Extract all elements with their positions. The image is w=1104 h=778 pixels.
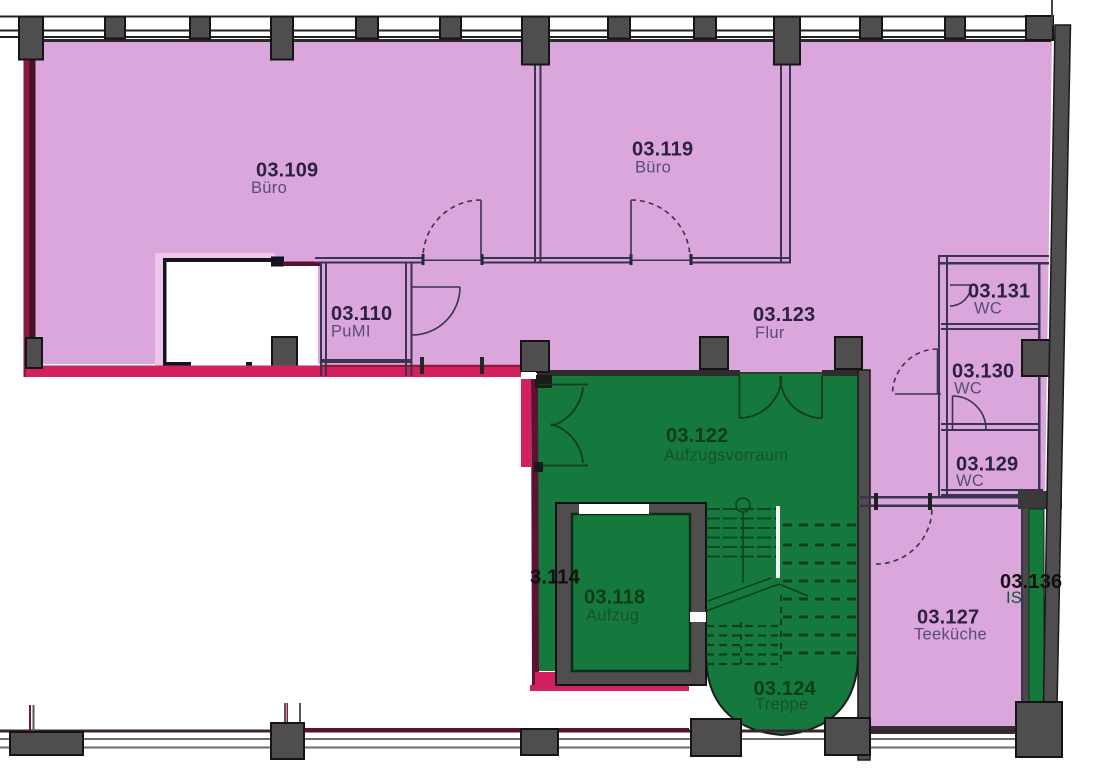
svg-text:03.122: 03.122 <box>666 425 728 447</box>
svg-text:WC: WC <box>956 472 984 490</box>
svg-text:Flur: Flur <box>755 324 785 342</box>
svg-text:Büro: Büro <box>251 179 287 197</box>
svg-text:IS: IS <box>1006 589 1022 607</box>
svg-text:Büro: Büro <box>635 159 671 177</box>
svg-text:Aufzugsvorraum: Aufzugsvorraum <box>664 447 788 465</box>
svg-text:Teeküche: Teeküche <box>914 626 987 644</box>
svg-text:Treppe: Treppe <box>755 696 808 714</box>
svg-text:3.114: 3.114 <box>530 567 581 589</box>
svg-text:03.118: 03.118 <box>584 587 645 609</box>
svg-text:WC: WC <box>954 380 982 398</box>
svg-text:Aufzug: Aufzug <box>586 607 639 625</box>
svg-text:03.119: 03.119 <box>632 139 693 161</box>
svg-text:PuMI: PuMI <box>331 323 371 341</box>
svg-text:WC: WC <box>974 300 1002 318</box>
svg-text:03.123: 03.123 <box>753 304 815 326</box>
